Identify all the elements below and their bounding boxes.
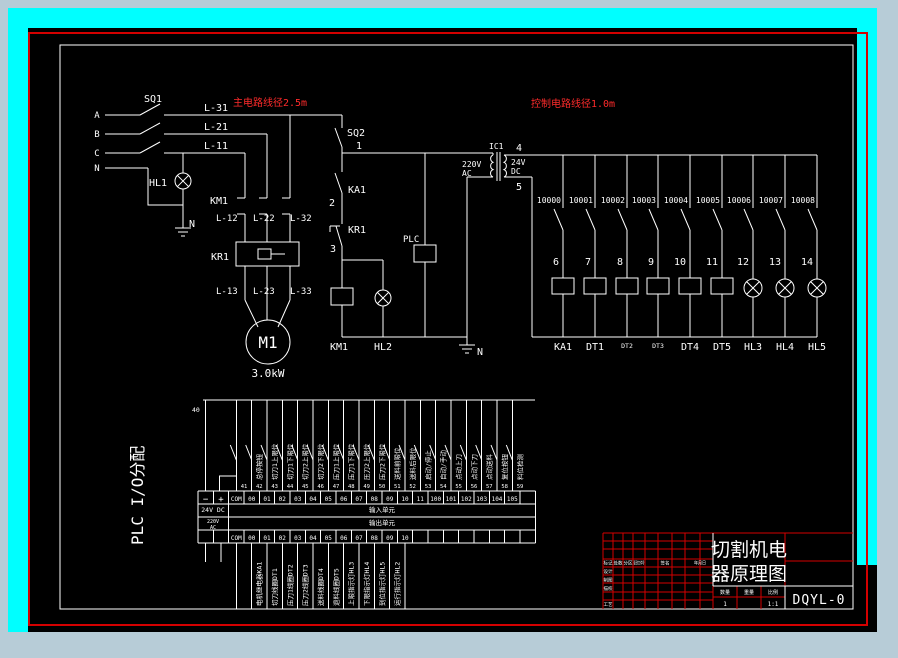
device-dt2: DT2 — [621, 342, 633, 350]
terminal-09: 09 — [386, 496, 394, 503]
node-10: 10 — [674, 257, 686, 268]
node-11: 11 — [706, 257, 718, 268]
plc-output-10004: 10004 — [664, 196, 688, 205]
out-terminal-10: 10 — [401, 535, 409, 542]
motor-label: M1 — [258, 333, 277, 352]
wire-48: 48 — [348, 484, 355, 490]
terminal-com-in: COM — [231, 496, 242, 503]
wire-56: 56 — [471, 484, 478, 490]
wire-41: 41 — [241, 484, 248, 490]
input-label-104: 复位按钮 — [500, 454, 509, 481]
input-label-07: 压刀2上限位 — [362, 443, 371, 480]
output-label-08: 到位指示灯HL5 — [377, 562, 386, 606]
device-ka1: KA1 — [554, 342, 572, 353]
phase-b-label: B — [94, 130, 99, 140]
wire-50: 50 — [379, 484, 386, 490]
output-label-09: 运行指示灯HL2 — [393, 562, 402, 606]
input-label-09: 送料前限位 — [393, 447, 402, 480]
wire-l12-label: L-12 — [216, 214, 238, 224]
control-wires — [330, 115, 817, 353]
terminal-07: 07 — [355, 496, 363, 503]
weight-label: 重量 — [744, 589, 754, 596]
device-hl4: HL4 — [776, 342, 794, 353]
power-circuit: A B C N SQ1 L-31 L-21 L-11 HL1 N KM1 L-1… — [94, 94, 342, 380]
input-label-103: 点动送料 — [485, 454, 494, 481]
transformer-primary-coil — [491, 155, 493, 177]
wire-46: 46 — [317, 484, 324, 490]
node-9: 9 — [648, 257, 654, 268]
node-1: 1 — [356, 141, 362, 152]
sheet-red-frame — [29, 33, 867, 625]
wire-l21-label: L-21 — [204, 122, 228, 133]
plc-output-10003: 10003 — [632, 196, 656, 205]
coil-dt2 — [616, 278, 638, 294]
tb-row-design: 设计 — [604, 568, 613, 575]
wire-l31-label: L-31 — [204, 103, 228, 114]
plc-output-10001: 10001 — [569, 196, 593, 205]
tb-header-sign: 签名 — [661, 560, 670, 567]
node-6: 6 — [553, 257, 559, 268]
terminal-101: 101 — [446, 496, 457, 503]
terminal-104: 104 — [492, 496, 503, 503]
device-dt3: DT3 — [652, 342, 664, 350]
schematic-svg: A B C N SQ1 L-31 L-21 L-11 HL1 N KM1 L-1… — [0, 0, 898, 658]
device-hl3: HL3 — [744, 342, 762, 353]
switch-sq1-label: SQ1 — [144, 94, 162, 105]
wire-44: 44 — [287, 484, 294, 490]
wire-49: 49 — [363, 484, 370, 490]
secondary-type: DC — [511, 167, 521, 176]
wire-58: 58 — [501, 484, 508, 490]
input-label-08: 压刀2下限位 — [377, 443, 386, 480]
input-label-06: 压刀1下限位 — [347, 443, 356, 480]
tb-header-date: 年月日 — [694, 560, 706, 567]
plc-output-10008: 10008 — [791, 196, 815, 205]
input-label-11: 启动/停止 — [423, 450, 432, 480]
terminal-08: 08 — [371, 496, 379, 503]
lamp-hl2-label: HL2 — [374, 342, 392, 353]
terminal-jumper — [220, 476, 237, 491]
wire-53: 53 — [425, 484, 432, 490]
device-dt4: DT4 — [681, 342, 699, 353]
coil-dt5 — [711, 278, 733, 294]
terminal-04: 04 — [309, 496, 317, 503]
input-label-01: 切刀1上限位 — [270, 443, 279, 480]
device-dt5: DT5 — [713, 342, 731, 353]
io-table-title: PLC I/O分配 — [128, 446, 147, 545]
wire-42: 42 — [256, 484, 263, 490]
input-label-02: 切刀1下限位 — [285, 443, 294, 480]
out-terminal-07: 07 — [355, 535, 363, 542]
output-label-07: 下限指示灯HL4 — [362, 562, 371, 606]
plc-output-10005: 10005 — [696, 196, 720, 205]
wire-51: 51 — [394, 484, 401, 490]
transformer-secondary-coil — [504, 155, 506, 177]
tb-header-count: 处数 — [614, 560, 623, 567]
km1-coil-box — [331, 288, 353, 305]
drawing-title-line1: 切割机电 — [711, 539, 787, 561]
terminal-03: 03 — [294, 496, 302, 503]
tb-header-zone: 分区 — [624, 560, 633, 567]
plc-box — [414, 245, 436, 262]
output-label-03: 压刀2线圈DT3 — [301, 564, 310, 606]
out-terminal-06: 06 — [340, 535, 348, 542]
title-block: 标记 处数 分区 更改文件号 签名 年月日 设计 制图 描校 工艺 切割机电 器… — [603, 533, 853, 609]
out-terminal-02: 02 — [279, 535, 287, 542]
motor-rating: 3.0kW — [251, 367, 284, 380]
coil-dt4 — [679, 278, 701, 294]
lamp-hl1-cross — [177, 175, 188, 186]
tb-header-docno: 更改文件号 — [634, 560, 645, 567]
lamp-crosses — [747, 282, 824, 295]
out-terminal-05: 05 — [325, 535, 333, 542]
wire-l33-label: L-33 — [290, 287, 312, 297]
scale-label: 比例 — [768, 589, 778, 596]
out-terminal-04: 04 — [309, 535, 317, 542]
node-7: 7 — [585, 257, 591, 268]
tb-row-check: 描校 — [604, 585, 613, 592]
phase-n-label: N — [94, 164, 99, 174]
wire-55: 55 — [455, 484, 462, 490]
lamp-hl2-cross — [377, 292, 388, 303]
out-terminal-00: 00 — [248, 535, 256, 542]
phase-a-label: A — [94, 111, 100, 121]
output-supply-type: AC — [210, 525, 216, 531]
terminal-10: 10 — [401, 496, 409, 503]
transformer-name: IC1 — [489, 142, 504, 151]
device-dt1: DT1 — [586, 342, 604, 353]
out-terminal-08: 08 — [371, 535, 379, 542]
output-label-05: 退料线圈DT5 — [331, 568, 340, 606]
node-8: 8 — [617, 257, 623, 268]
terminal-05: 05 — [325, 496, 333, 503]
wire-47: 47 — [333, 484, 340, 490]
phase-c-label: C — [94, 149, 99, 159]
control-wire-note: 控制电路线径1.0m — [531, 97, 615, 110]
terminal-00: 00 — [248, 496, 256, 503]
wire-l23-label: L-23 — [253, 287, 275, 297]
km1-coil-label: KM1 — [330, 342, 348, 353]
plc-output-10006: 10006 — [727, 196, 751, 205]
output-label-06: 上限指示灯HL3 — [347, 562, 356, 606]
wire-59: 59 — [517, 484, 524, 490]
node-3: 3 — [330, 244, 336, 255]
out-terminal-03: 03 — [294, 535, 302, 542]
terminal-105: 105 — [507, 496, 518, 503]
input-label-10: 送料后限位 — [408, 447, 417, 480]
terminal-02: 02 — [279, 496, 287, 503]
node-5: 5 — [516, 182, 522, 193]
input-label-04: 切刀2下限位 — [316, 443, 325, 480]
wire-l11-label: L-11 — [204, 141, 228, 152]
input-supply-label: 24V DC — [201, 506, 225, 514]
terminal-06: 06 — [340, 496, 348, 503]
wire-57: 57 — [486, 484, 493, 490]
terminal-minus: − — [203, 495, 209, 505]
primary-type: AC — [462, 169, 472, 178]
drawing-code: DQYL-0 — [793, 593, 846, 608]
input-label-100: 自动/手动 — [439, 450, 448, 480]
contactor-km1-label: KM1 — [210, 196, 228, 207]
cad-viewport: A B C N SQ1 L-31 L-21 L-11 HL1 N KM1 L-1… — [0, 0, 898, 658]
contact-kr1-label: KR1 — [348, 225, 366, 236]
thermal-relay-element — [258, 249, 271, 259]
drawing-title-line2: 器原理图 — [711, 563, 787, 585]
input-label-105: 料位检测 — [515, 454, 524, 481]
thermal-kr1-label: KR1 — [211, 252, 229, 263]
coil-dt3 — [647, 278, 669, 294]
wire-l13-label: L-13 — [216, 287, 238, 297]
tb-row-process: 工艺 — [604, 602, 613, 608]
terminal-01: 01 — [263, 496, 271, 503]
terminal-100: 100 — [430, 496, 441, 503]
input-unit-label: 输入单元 — [369, 505, 396, 514]
plc-output-10007: 10007 — [759, 196, 783, 205]
plc-output-10002: 10002 — [601, 196, 625, 205]
terminal-102: 102 — [461, 496, 472, 503]
output-label-02: 压刀1线圈DT2 — [285, 564, 294, 606]
terminal-103: 103 — [476, 496, 487, 503]
wire-l22-label: L-22 — [253, 214, 275, 224]
output-label-00: 电机继电器KA1 — [255, 562, 264, 606]
sheet-white-border — [60, 45, 853, 609]
tb-row-draw: 制图 — [604, 577, 613, 584]
branch-wires — [554, 155, 817, 337]
scale-value: 1:1 — [768, 601, 779, 608]
contact-ka1-label: KA1 — [348, 185, 366, 196]
secondary-voltage: 24V — [511, 158, 526, 167]
device-hl5: HL5 — [808, 342, 826, 353]
qty-label: 数量 — [720, 589, 730, 596]
input-label-00: 总停按钮 — [255, 454, 264, 481]
coil-dt1 — [584, 278, 606, 294]
tb-header-mark: 标记 — [604, 560, 613, 567]
wire-43: 43 — [271, 484, 278, 490]
thermal-relay-box — [236, 242, 299, 266]
node-14: 14 — [801, 257, 813, 268]
out-terminal-09: 09 — [386, 535, 394, 542]
output-unit-label: 输出单元 — [369, 518, 396, 527]
coil-ka1 — [552, 278, 574, 294]
qty-value: 1 — [723, 601, 727, 608]
switch-sq2-label: SQ2 — [347, 128, 365, 139]
output-label-01: 切刀线圈DT1 — [270, 568, 279, 606]
io-table: PLC I/O分配 40 41 42 43 44 45 46 47 48 49 … — [128, 400, 535, 609]
plc-label: PLC — [403, 235, 419, 245]
output-label-04: 送料线圈DT4 — [316, 568, 325, 606]
main-wire-note: 主电路线径2.5m — [233, 96, 307, 109]
terminal-plus: + — [218, 495, 224, 505]
control-neutral-label: N — [477, 347, 483, 358]
primary-voltage: 220V — [462, 160, 481, 169]
input-label-101: 点动上刀 — [454, 454, 463, 480]
ladder-branches: 10000 10001 10002 10003 10004 10005 1000… — [537, 155, 826, 353]
node-2: 2 — [329, 198, 335, 209]
input-label-03: 切刀2上限位 — [301, 443, 310, 480]
wire-54: 54 — [440, 484, 447, 490]
wire-52: 52 — [409, 484, 416, 490]
terminal-11: 11 — [417, 496, 425, 503]
input-label-102: 点动下刀 — [470, 454, 478, 480]
node-13: 13 — [769, 257, 781, 268]
node-12: 12 — [737, 257, 749, 268]
bus-wire-number: 40 — [192, 406, 200, 414]
node-4: 4 — [516, 143, 522, 154]
neutral-ground-label: N — [189, 219, 195, 230]
wire-l32-label: L-32 — [290, 214, 312, 224]
input-label-05: 压刀1上限位 — [331, 443, 340, 480]
plc-output-10000: 10000 — [537, 196, 561, 205]
control-circuit: SQ2 1 KA1 2 KR1 3 PLC KM1 HL2 N IC1 220V… — [329, 97, 817, 358]
lamp-hl1-label: HL1 — [149, 178, 167, 189]
out-terminal-01: 01 — [263, 535, 271, 542]
wire-45: 45 — [302, 484, 309, 490]
out-terminal-com: COM — [231, 535, 242, 542]
